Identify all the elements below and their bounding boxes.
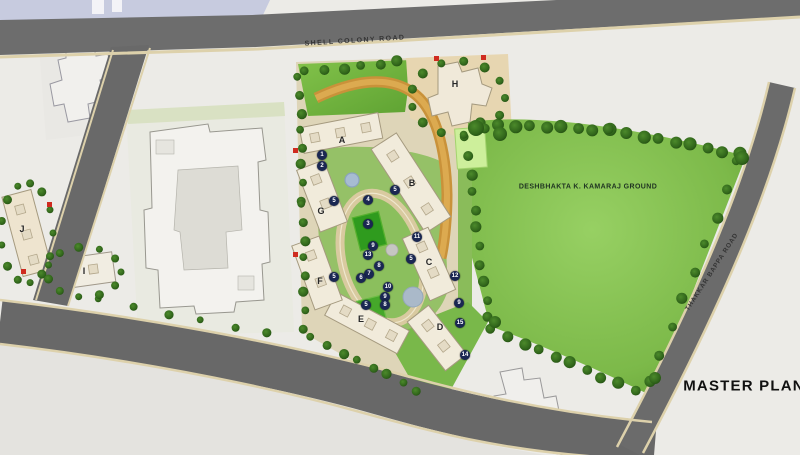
tree-icon xyxy=(478,276,489,287)
tree-icon xyxy=(493,127,507,141)
tree-icon xyxy=(483,296,492,305)
tree-icon xyxy=(111,282,119,290)
site-marker-6: 6 xyxy=(356,273,366,283)
tree-icon xyxy=(319,65,329,75)
tree-icon xyxy=(653,133,664,144)
tree-icon xyxy=(376,60,386,70)
tree-icon xyxy=(475,242,484,251)
tree-icon xyxy=(299,179,307,187)
building-label-g: G xyxy=(317,206,324,216)
tree-icon xyxy=(700,240,709,249)
tree-icon xyxy=(495,111,504,120)
tree-icon xyxy=(47,206,54,213)
tree-icon xyxy=(111,255,119,263)
tree-icon xyxy=(400,379,408,387)
tree-icon xyxy=(459,57,468,66)
tree-icon xyxy=(298,287,308,297)
tree-icon xyxy=(96,246,103,253)
tree-icon xyxy=(74,243,83,252)
tree-icon xyxy=(470,221,481,232)
tree-icon xyxy=(683,137,696,150)
site-marker-9: 9 xyxy=(454,298,464,308)
plaza-circle-small xyxy=(386,244,398,256)
tree-icon xyxy=(489,316,501,328)
tree-icon xyxy=(541,122,553,134)
tree-icon xyxy=(519,338,531,350)
tree-icon xyxy=(46,252,54,260)
tree-icon xyxy=(44,275,53,284)
tree-icon xyxy=(703,143,714,154)
tree-icon xyxy=(408,85,417,94)
tree-icon xyxy=(339,349,349,359)
site-marker-8: 8 xyxy=(374,261,384,271)
building-label-d: D xyxy=(437,322,444,332)
tree-icon xyxy=(297,200,305,208)
site-marker-5: 5 xyxy=(361,300,371,310)
tree-icon xyxy=(293,73,301,81)
tree-icon xyxy=(391,55,402,66)
tree-icon xyxy=(296,159,306,169)
building-label-f: F xyxy=(317,276,323,286)
tree-icon xyxy=(299,253,307,261)
site-marker-12: 12 xyxy=(450,271,460,281)
tree-icon xyxy=(323,341,332,350)
tree-icon xyxy=(14,183,21,190)
site-marker-14: 14 xyxy=(460,350,470,360)
building-label-i: I xyxy=(83,266,86,276)
tree-icon xyxy=(232,324,240,332)
tree-icon xyxy=(620,127,632,139)
tree-icon xyxy=(164,310,173,319)
master-plan-canvas: SHELL COLONY ROAD THAKKAR BAPPA ROAD DES… xyxy=(0,0,800,455)
tree-icon xyxy=(418,69,428,79)
tree-icon xyxy=(56,287,64,295)
tree-icon xyxy=(603,123,614,134)
tree-icon xyxy=(582,365,592,375)
tree-icon xyxy=(45,262,52,269)
tree-icon xyxy=(301,271,310,280)
building-label-j: J xyxy=(19,224,24,234)
tree-icon xyxy=(631,386,641,396)
tree-icon xyxy=(595,372,606,383)
plaza-circle-large xyxy=(403,287,423,307)
tree-icon xyxy=(26,179,34,187)
tree-icon xyxy=(722,185,732,195)
site-marker-4: 4 xyxy=(363,195,373,205)
tree-icon xyxy=(37,187,46,196)
site-marker-2: 2 xyxy=(317,161,327,171)
site-marker-1: 1 xyxy=(317,150,327,160)
water-feature xyxy=(345,173,359,187)
tree-icon xyxy=(50,230,57,237)
tree-icon xyxy=(408,103,416,111)
tree-icon xyxy=(460,131,468,139)
tree-icon xyxy=(300,236,310,246)
tree-icon xyxy=(480,63,490,73)
site-marker-15: 15 xyxy=(455,318,465,328)
tree-icon xyxy=(369,364,378,373)
tree-icon xyxy=(412,387,421,396)
tree-icon xyxy=(301,307,309,315)
site-marker-5: 5 xyxy=(329,272,339,282)
tree-icon xyxy=(14,276,22,284)
tree-icon xyxy=(573,123,584,134)
tree-icon xyxy=(564,356,576,368)
site-marker-11: 11 xyxy=(412,232,422,242)
site-marker-10: 10 xyxy=(383,282,393,292)
tree-icon xyxy=(262,328,271,337)
tree-icon xyxy=(649,372,661,384)
tree-icon xyxy=(306,333,314,341)
tree-icon xyxy=(299,218,308,227)
tree-icon xyxy=(296,126,304,134)
tree-icon xyxy=(712,213,723,224)
tree-icon xyxy=(437,128,446,137)
tree-icon xyxy=(554,120,567,133)
tree-icon xyxy=(524,120,535,131)
tree-icon xyxy=(638,131,651,144)
tree-icon xyxy=(501,94,509,102)
ground-label: DESHBHAKTA K. KAMARAJ GROUND xyxy=(519,184,657,191)
tree-icon xyxy=(298,144,307,153)
tree-icon xyxy=(297,109,307,119)
site-plan-drawing xyxy=(0,0,800,455)
tree-icon xyxy=(676,293,687,304)
tree-icon xyxy=(475,260,485,270)
tree-icon xyxy=(3,195,12,204)
tree-icon xyxy=(468,187,477,196)
site-marker-8: 8 xyxy=(380,300,390,310)
tree-icon xyxy=(356,61,365,70)
building-label-b: B xyxy=(409,178,416,188)
building-label-c: C xyxy=(426,257,433,267)
building-label-h: H xyxy=(452,79,459,89)
tree-icon xyxy=(339,64,350,75)
tree-icon xyxy=(300,66,309,75)
tree-icon xyxy=(95,290,104,299)
tree-icon xyxy=(75,293,82,300)
tree-icon xyxy=(381,369,391,379)
tree-icon xyxy=(735,151,749,165)
tree-icon xyxy=(690,268,700,278)
tree-icon xyxy=(502,331,513,342)
tree-icon xyxy=(668,323,677,332)
tree-icon xyxy=(612,377,624,389)
tree-icon xyxy=(468,120,484,136)
tree-icon xyxy=(509,120,522,133)
neighbour-plot-middle xyxy=(126,102,294,336)
site-marker-5: 5 xyxy=(406,254,416,264)
tree-icon xyxy=(463,151,473,161)
site-marker-5: 5 xyxy=(390,185,400,195)
tree-icon xyxy=(130,303,138,311)
site-marker-13: 13 xyxy=(363,250,373,260)
tree-icon xyxy=(586,124,598,136)
tree-icon xyxy=(496,77,504,85)
tree-icon xyxy=(551,352,562,363)
tree-icon xyxy=(27,279,34,286)
page-title: MASTER PLAN xyxy=(683,378,800,395)
tree-icon xyxy=(418,118,428,128)
tree-icon xyxy=(670,137,682,149)
tree-icon xyxy=(467,170,478,181)
tree-icon xyxy=(197,316,204,323)
tree-icon xyxy=(716,146,728,158)
building-label-e: E xyxy=(358,314,364,324)
tree-icon xyxy=(299,325,308,334)
tree-icon xyxy=(118,269,125,276)
building-label-a: A xyxy=(339,135,346,145)
site-marker-3: 3 xyxy=(363,219,373,229)
tree-icon xyxy=(3,262,12,271)
tree-icon xyxy=(295,91,304,100)
tree-icon xyxy=(353,356,361,364)
tree-icon xyxy=(654,351,664,361)
tree-icon xyxy=(534,345,544,355)
tree-icon xyxy=(471,206,481,216)
site-marker-5: 5 xyxy=(329,196,339,206)
tree-icon xyxy=(56,249,64,257)
